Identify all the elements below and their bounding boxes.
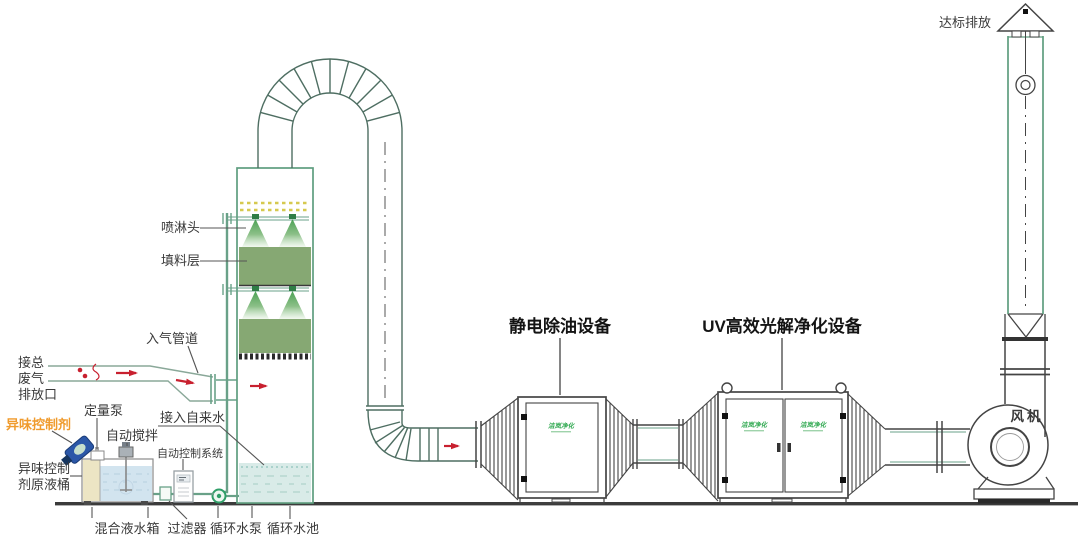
packing-layer-1 (239, 247, 311, 286)
circulating-pump (213, 490, 226, 503)
emission-label: 达标排放 (939, 15, 991, 30)
tap-water-label: 接入自来水 (160, 410, 225, 425)
dosing-pump-label: 定量泵 (84, 403, 123, 418)
diagram-canvas: 洁岚净化 (0, 0, 1080, 543)
agent-barrel-label-1: 异味控制 (18, 461, 70, 476)
exhaust-stack (998, 4, 1053, 314)
odor-agent-label: 异味控制剂 (6, 417, 71, 432)
centrifugal-fan: 风机 (968, 341, 1054, 504)
waste-inlet-label-1: 接总 (18, 355, 44, 370)
brand-logo-box1: 洁岚净化 (548, 422, 576, 430)
box2-inlet-cone (683, 393, 718, 501)
auto-stir-label: 自动搅拌 (106, 428, 158, 443)
box2-outlet-cone (848, 394, 885, 496)
waste-inlet-label-3: 排放口 (18, 387, 57, 402)
fan-label: 风机 (1011, 408, 1044, 424)
agent-barrel-label-2: 剂原液桶 (18, 477, 70, 492)
leader-lines (52, 228, 782, 519)
uv-photolysis-unit: 洁岚净化 洁岚净化 (718, 383, 848, 503)
auto-control-label: 自动控制系统 (157, 446, 223, 460)
spray-tower (223, 168, 313, 503)
box1-outlet-cone (606, 399, 633, 497)
filter-label: 过滤器 (167, 521, 206, 536)
waste-inlet-label-2: 废气 (18, 371, 44, 386)
circ-pump-label: 循环水泵 (210, 521, 262, 536)
rain-cap (998, 4, 1053, 31)
brand-logo-box2-right: 洁岚净化 (800, 421, 828, 429)
mix-tank-label: 混合液水箱 (94, 521, 159, 536)
packing-layer-2 (239, 319, 311, 353)
auto-control-cabinet (174, 471, 193, 502)
mixing-tank (82, 459, 153, 505)
circulating-pool (239, 463, 311, 502)
horizontal-duct (411, 421, 481, 468)
process-flow-diagram: 洁岚净化 (0, 0, 1080, 543)
filter-device (160, 487, 171, 500)
packing-layer-label: 填料层 (161, 253, 200, 268)
box1-inlet-cone (481, 398, 518, 500)
inlet-pipe-label: 入气管道 (146, 331, 198, 346)
electrostatic-unit: 洁岚净化 (518, 397, 606, 503)
waste-gas-inlet-duct (48, 366, 237, 404)
fan-inlet-duct (885, 421, 970, 473)
flow-arrow-inlet2 (176, 380, 193, 383)
circ-pool-label: 循环水池 (267, 521, 319, 536)
connecting-duct (633, 419, 683, 469)
box2-title: UV高效光解净化设备 (702, 316, 863, 336)
brand-logo-box2-left: 洁岚净化 (741, 421, 769, 429)
spray-head-label: 喷淋头 (161, 220, 200, 235)
duct-elbow (368, 410, 418, 461)
stack-transition (1002, 314, 1048, 341)
box1-title: 静电除油设备 (509, 316, 612, 336)
